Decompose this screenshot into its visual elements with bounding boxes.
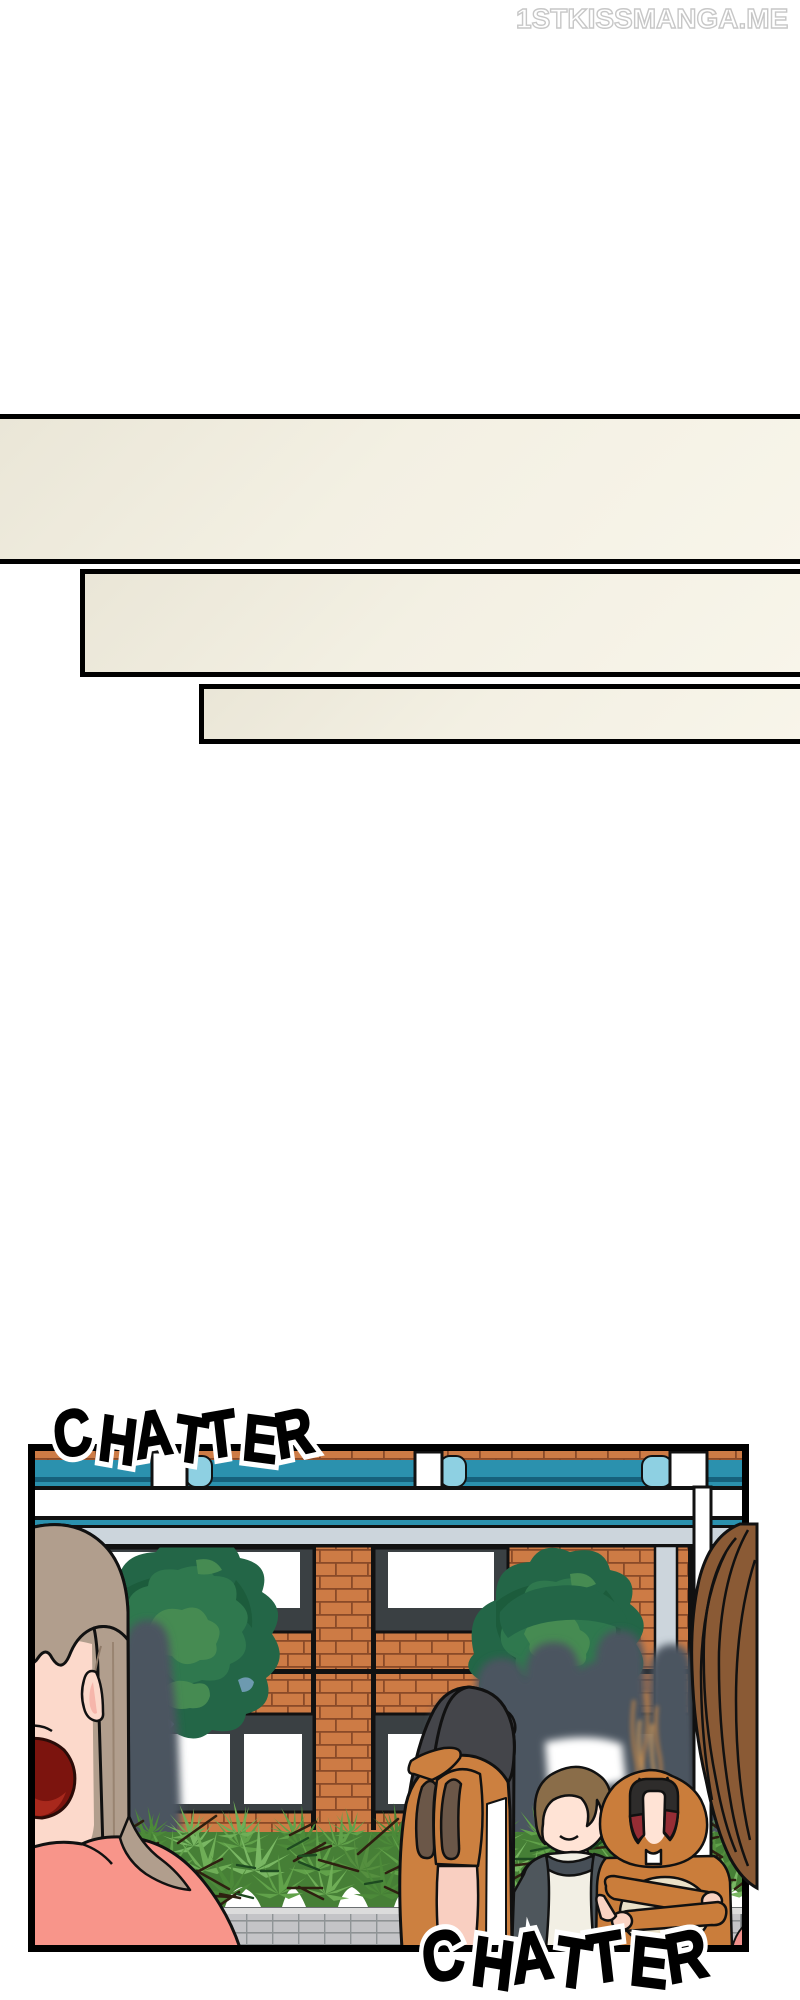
svg-text:CHATTER: CHATTER [417,1912,715,2000]
